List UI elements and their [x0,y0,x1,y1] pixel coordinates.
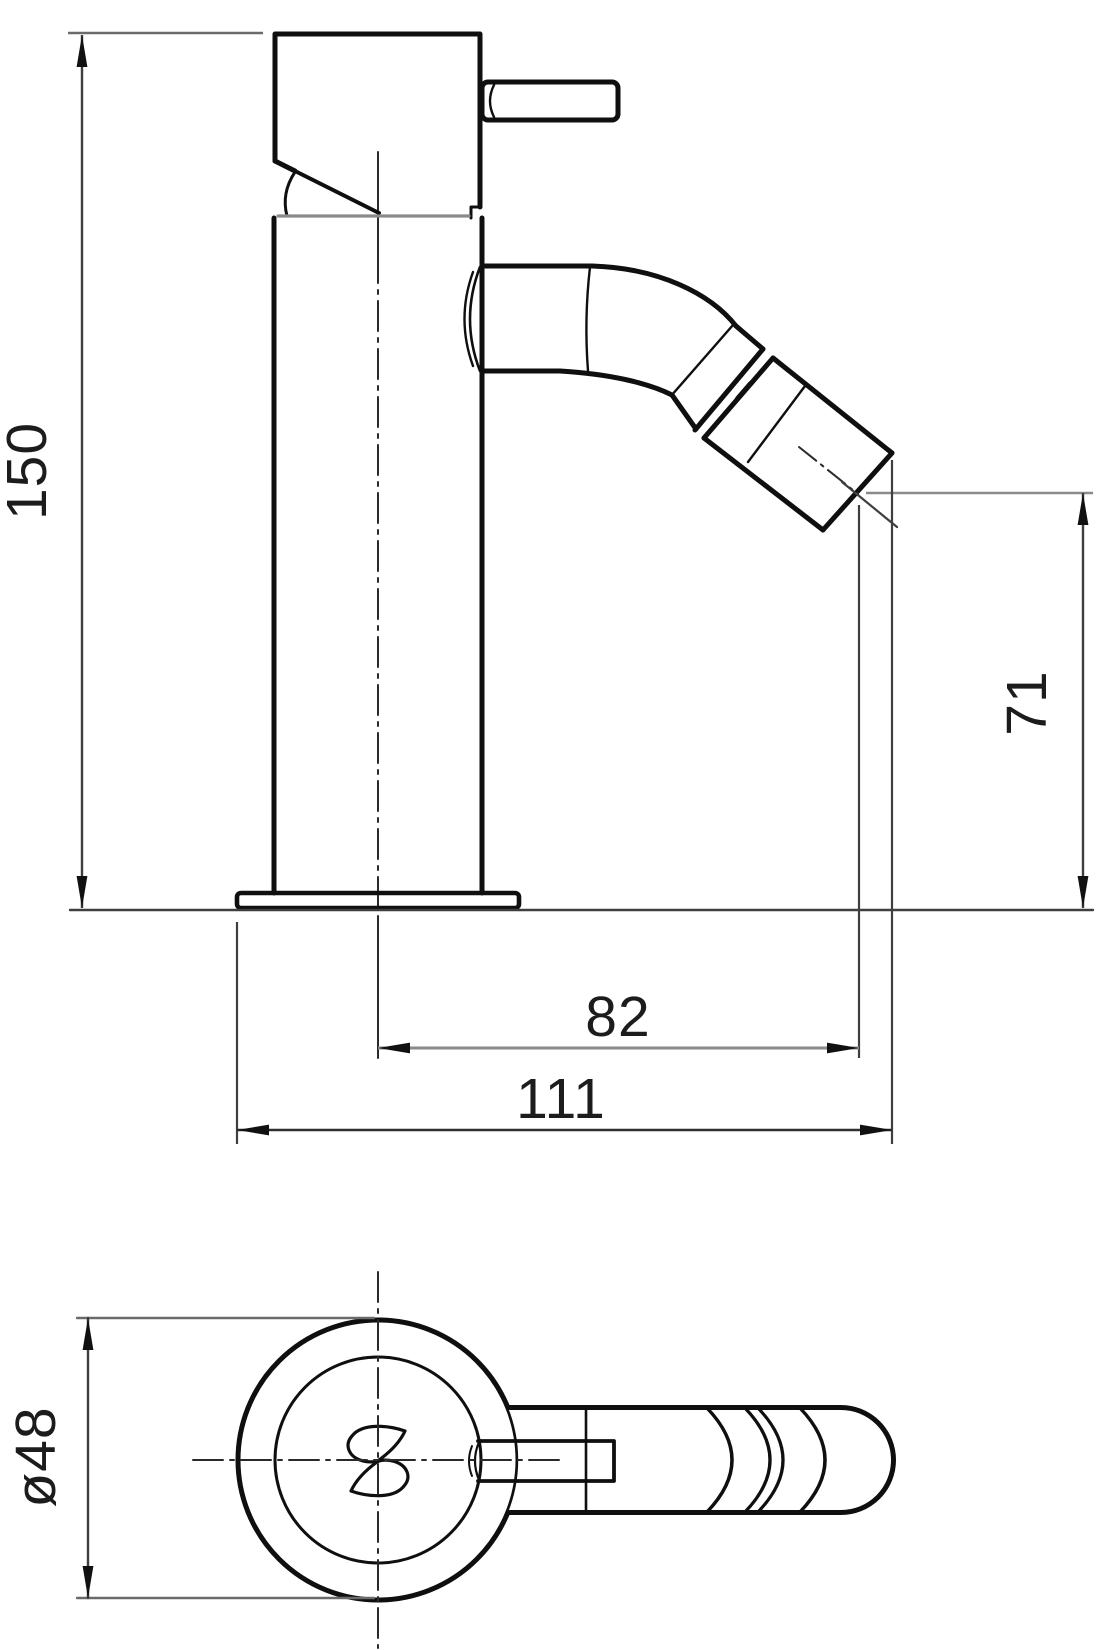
dim-111-label: 111 [516,1067,606,1131]
dim-82-label: 82 [585,985,650,1049]
spout [465,266,898,530]
spout-outlet-face [823,453,892,530]
dim-overall-height: 150 [0,33,263,908]
plan-view: ø48 [4,1272,894,1648]
plan-spout [508,1408,894,1513]
plan-centerlines [193,1272,560,1648]
dim-outlet-height: 71 [866,493,1093,908]
drawing-page: 150 71 82 111 [0,0,1117,1650]
handle-lever [482,82,618,120]
tap-technical-drawing: 150 71 82 111 [0,0,1117,1650]
dim-total-projection: 111 [237,1067,892,1131]
dim-spout-projection: 82 [378,985,859,1049]
dim-48-label: ø48 [4,1406,68,1507]
dim-71-label: 71 [995,670,1059,735]
dim-150-label: 150 [0,422,59,520]
dim-body-diameter: ø48 [4,1318,374,1598]
dimension-annotations: 150 71 82 111 [0,33,1093,1144]
side-elevation-view [70,34,1093,1058]
